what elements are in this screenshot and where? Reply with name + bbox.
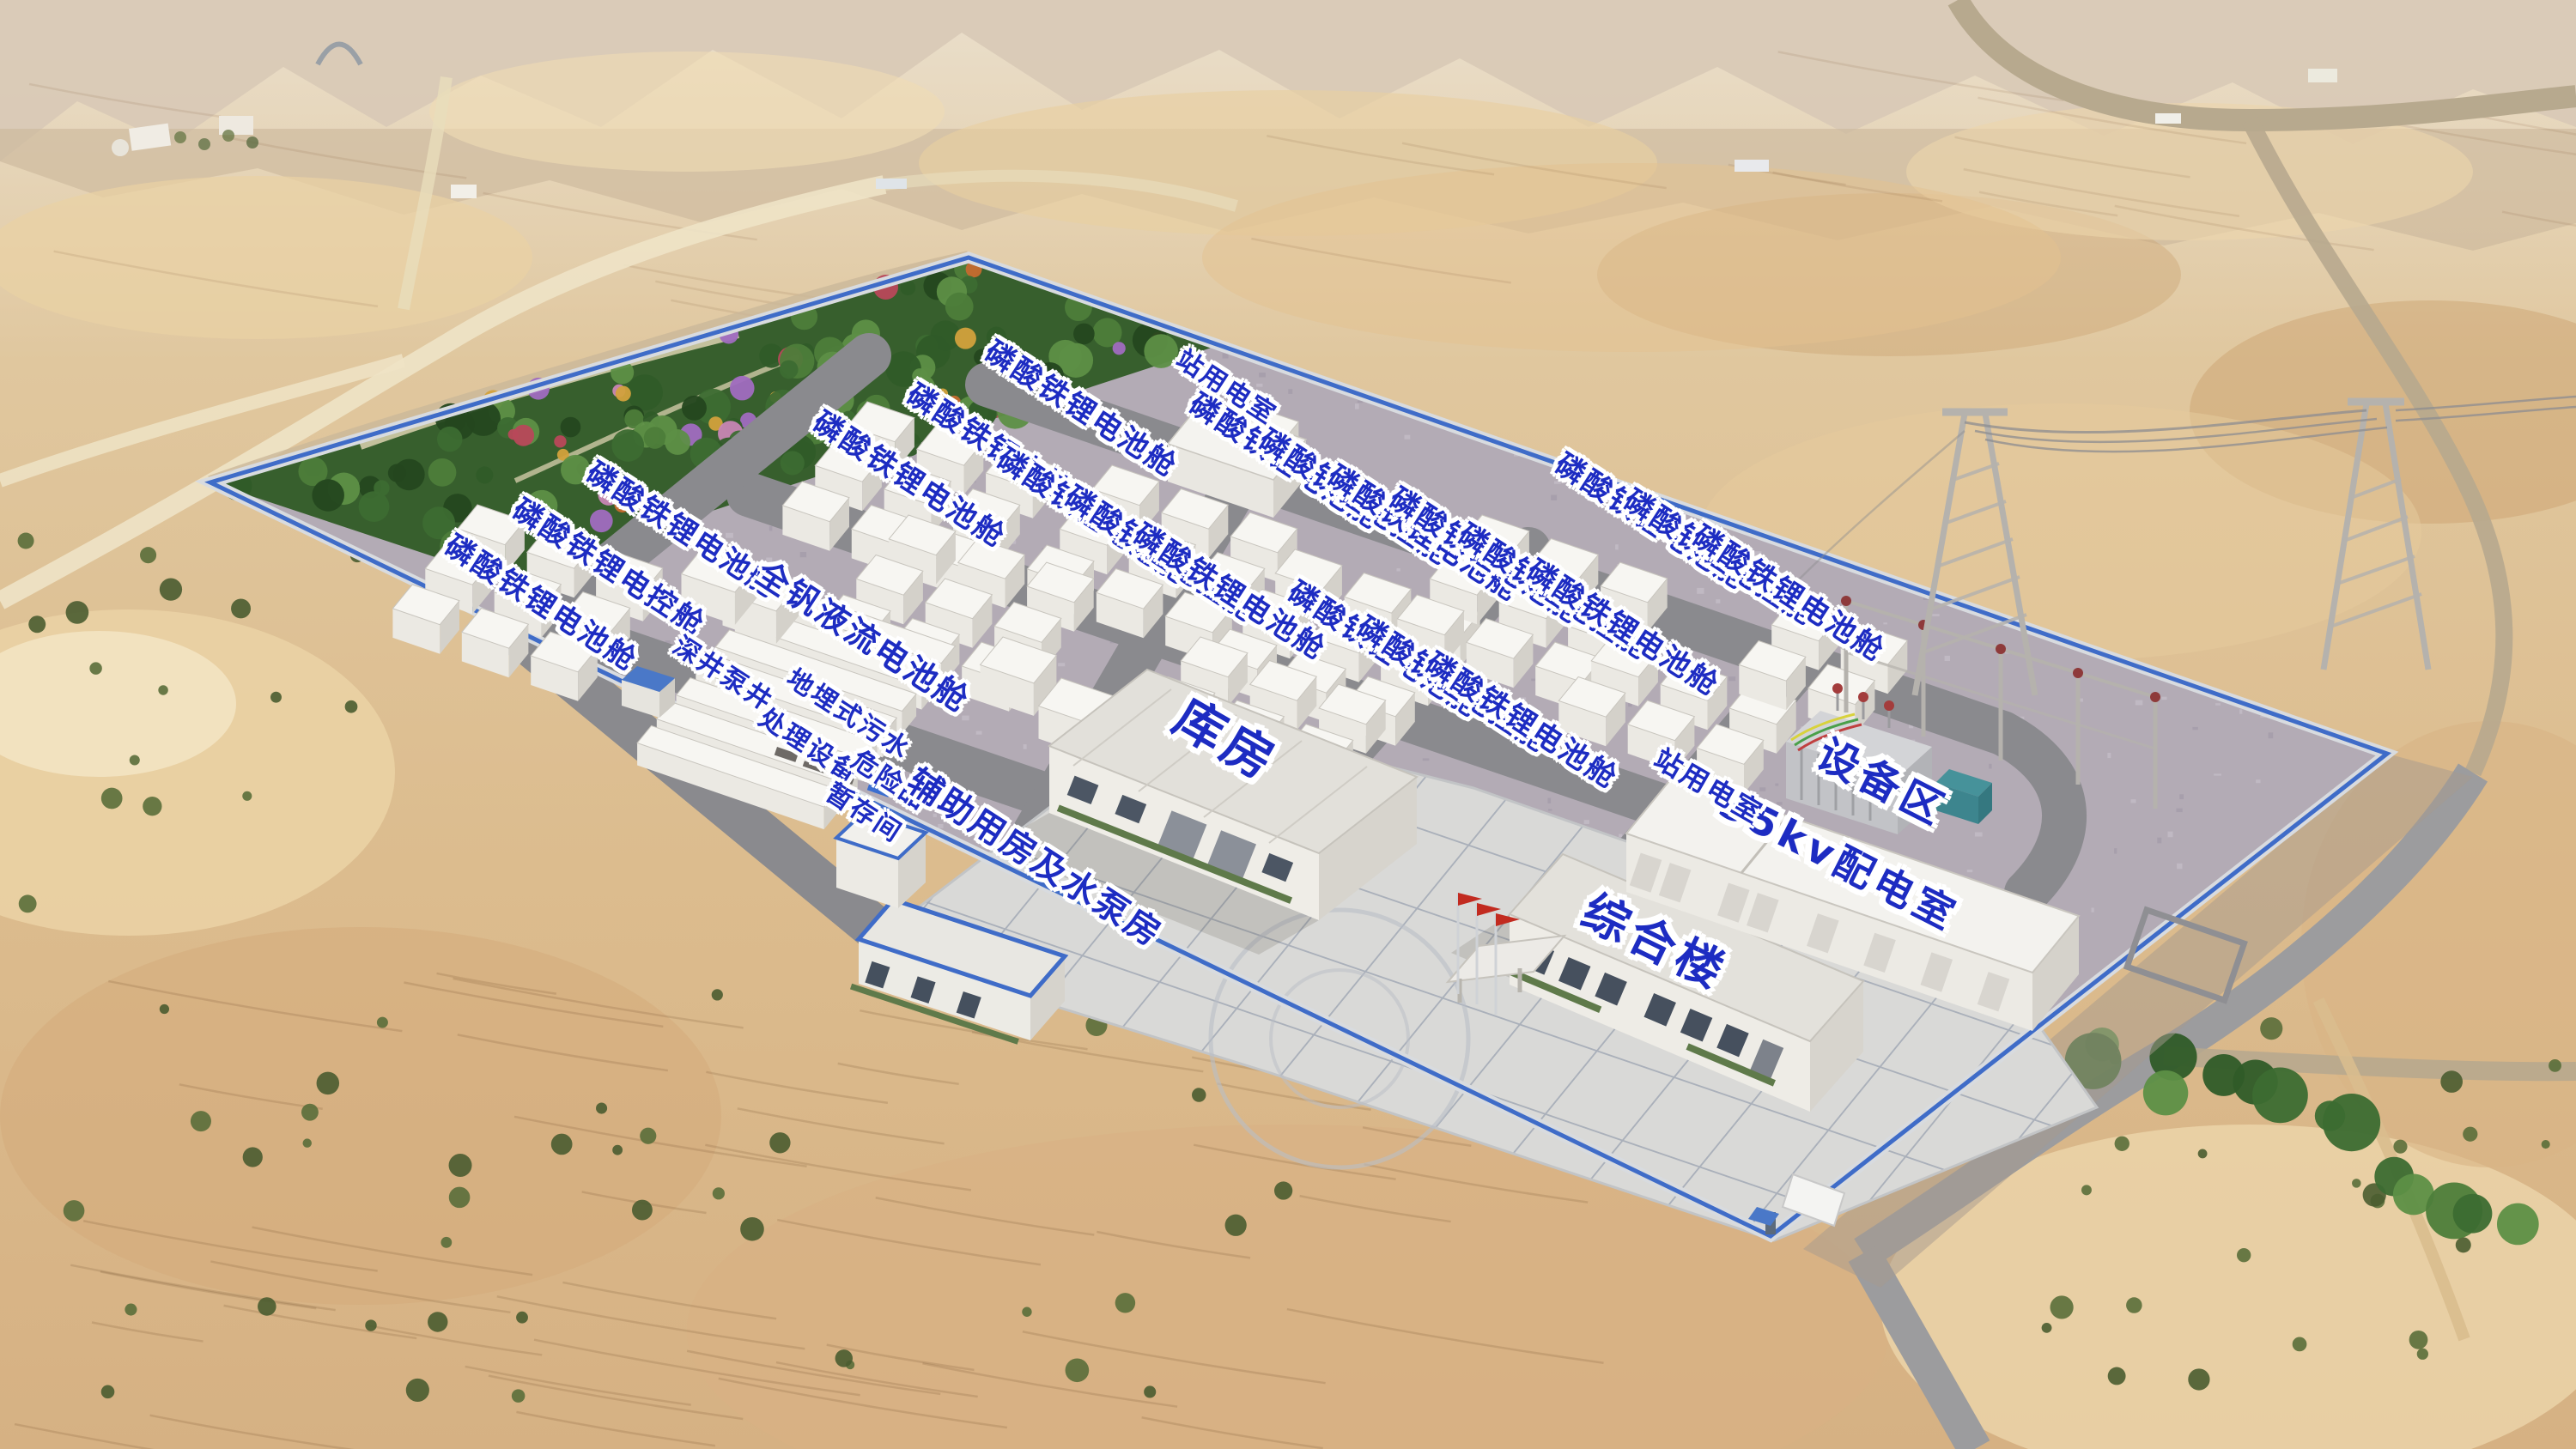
site-label: 综合楼 bbox=[1575, 888, 1734, 997]
site-label: 站用电室 bbox=[1649, 744, 1767, 828]
site-label: 设备区 bbox=[1811, 733, 1953, 833]
site-label: 辅助用房及水泵房 bbox=[902, 764, 1168, 954]
site-label: 深井泵井 bbox=[668, 633, 777, 716]
site-label: 磷酸铁锂电池舱 bbox=[1522, 555, 1724, 701]
aerial-render-stage: 磷酸铁锂电池舱磷酸铁锂电控舱磷酸铁锂电池舱站用电室磷酸铁锂电池舱磷酸铁锂电控舱磷… bbox=[0, 0, 2576, 1449]
labels-layer: 磷酸铁锂电池舱磷酸铁锂电控舱磷酸铁锂电池舱站用电室磷酸铁锂电池舱磷酸铁锂电控舱磷… bbox=[0, 0, 2576, 1449]
site-label: 磷酸铁锂电池舱 bbox=[1687, 521, 1890, 667]
site-label: 磷酸铁锂电池舱 bbox=[1420, 648, 1623, 794]
site-label: 库房 bbox=[1166, 691, 1286, 789]
site-label: 全钒液流电池舱 bbox=[750, 556, 975, 718]
